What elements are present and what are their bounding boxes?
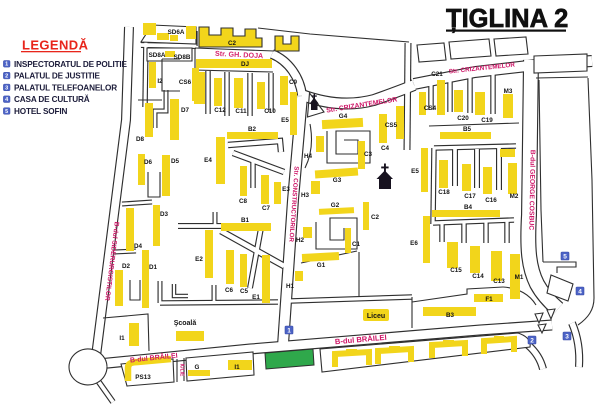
svg-text:G2: G2	[331, 202, 340, 209]
svg-text:C12: C12	[214, 107, 226, 114]
svg-text:4: 4	[578, 288, 582, 295]
svg-text:B5: B5	[463, 126, 472, 133]
svg-text:C4: C4	[381, 145, 390, 152]
svg-text:INSPECTORATUL DE POLITIE: INSPECTORATUL DE POLITIE	[14, 60, 128, 69]
svg-text:C9: C9	[289, 79, 298, 86]
svg-text:Liceu: Liceu	[367, 313, 385, 320]
svg-text:LEGENDĂ: LEGENDĂ	[22, 38, 89, 53]
svg-text:C15: C15	[450, 267, 462, 274]
svg-text:5: 5	[563, 253, 567, 260]
svg-text:3: 3	[5, 85, 8, 91]
svg-text:G3: G3	[333, 177, 342, 184]
svg-text:F1: F1	[485, 296, 493, 303]
svg-text:C10: C10	[264, 108, 276, 115]
svg-text:PALATUL DE JUSTITIE: PALATUL DE JUSTITIE	[14, 72, 101, 81]
svg-text:CS5: CS5	[385, 122, 398, 129]
svg-text:E5: E5	[411, 168, 419, 175]
svg-text:IULIE: IULIE	[179, 364, 185, 377]
svg-text:D7: D7	[181, 107, 190, 114]
svg-text:2: 2	[5, 74, 8, 80]
svg-text:I2: I2	[157, 78, 163, 85]
svg-text:SD8A: SD8A	[149, 52, 166, 59]
svg-text:B3: B3	[446, 312, 455, 319]
svg-text:B1: B1	[241, 217, 250, 224]
svg-text:SD8B: SD8B	[174, 54, 191, 61]
svg-text:D3: D3	[160, 211, 169, 218]
svg-text:5: 5	[5, 109, 8, 115]
svg-text:C6: C6	[225, 287, 234, 294]
svg-text:D8: D8	[136, 136, 145, 143]
svg-text:Şcoală: Şcoală	[174, 320, 197, 327]
svg-text:I1: I1	[119, 335, 125, 342]
svg-text:C1: C1	[352, 241, 361, 248]
svg-text:H2: H2	[296, 237, 305, 244]
svg-text:CS6: CS6	[179, 79, 192, 86]
svg-text:1: 1	[5, 62, 8, 68]
svg-text:C18: C18	[438, 189, 450, 196]
svg-text:H3: H3	[301, 192, 310, 199]
svg-text:E2: E2	[195, 256, 203, 263]
svg-text:D4: D4	[134, 243, 143, 250]
svg-text:C14: C14	[472, 273, 484, 280]
svg-text:SD6A: SD6A	[168, 29, 185, 36]
svg-text:B2: B2	[248, 126, 257, 133]
svg-text:C13: C13	[493, 278, 505, 285]
svg-text:D1: D1	[149, 264, 158, 271]
svg-text:PALATUL TELEFOANELOR: PALATUL TELEFOANELOR	[14, 83, 117, 92]
svg-text:C17: C17	[464, 193, 476, 200]
svg-text:C19: C19	[481, 117, 493, 124]
svg-text:E4: E4	[204, 157, 212, 164]
svg-text:C2: C2	[371, 214, 380, 221]
svg-text:C16: C16	[485, 197, 497, 204]
svg-text:D5: D5	[171, 158, 180, 165]
svg-text:C11: C11	[235, 108, 247, 115]
svg-text:C21: C21	[431, 71, 443, 78]
svg-text:M2: M2	[510, 193, 519, 200]
svg-text:E1: E1	[252, 294, 260, 301]
svg-text:G: G	[195, 364, 200, 371]
svg-text:D2: D2	[122, 263, 131, 270]
svg-text:3: 3	[565, 333, 569, 340]
svg-text:2: 2	[530, 337, 534, 344]
svg-text:1: 1	[287, 327, 291, 334]
svg-text:C20: C20	[457, 115, 469, 122]
svg-text:G1: G1	[317, 262, 326, 269]
svg-text:C3: C3	[364, 151, 373, 158]
svg-text:E5: E5	[281, 117, 289, 124]
svg-text:G4: G4	[339, 113, 348, 120]
svg-text:D6: D6	[144, 159, 153, 166]
svg-text:B4: B4	[464, 204, 473, 211]
svg-text:CASA DE CULTURĂ: CASA DE CULTURĂ	[14, 94, 90, 104]
svg-text:I1: I1	[234, 364, 240, 371]
svg-text:C5: C5	[240, 288, 249, 295]
svg-text:C8: C8	[239, 198, 248, 205]
svg-text:PS13: PS13	[135, 374, 151, 381]
svg-text:C2: C2	[228, 40, 237, 47]
svg-text:H4: H4	[304, 153, 313, 160]
svg-text:H1: H1	[286, 283, 295, 290]
svg-text:M3: M3	[504, 88, 513, 95]
svg-text:CS4: CS4	[424, 105, 437, 112]
svg-text:C7: C7	[262, 205, 271, 212]
svg-text:HOTEL SOFIN: HOTEL SOFIN	[14, 107, 67, 116]
svg-text:E6: E6	[410, 240, 418, 247]
svg-text:E3: E3	[282, 186, 290, 193]
svg-text:M1: M1	[515, 274, 524, 281]
svg-text:ȚIGLINA 2: ȚIGLINA 2	[446, 5, 568, 33]
svg-text:DJ: DJ	[241, 61, 250, 68]
svg-text:B-dul GEORGE COSBUC: B-dul GEORGE COSBUC	[527, 150, 535, 231]
